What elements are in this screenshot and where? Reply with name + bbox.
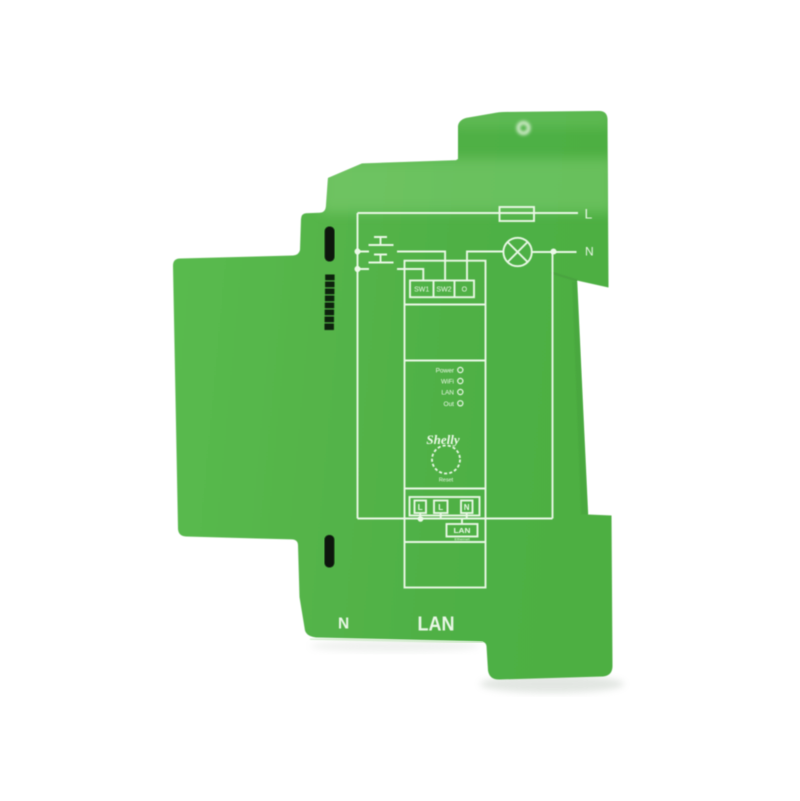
svg-text:O: O [462,287,468,294]
svg-text:N: N [585,245,594,259]
svg-text:Reset: Reset [439,478,454,484]
svg-text:LAN: LAN [454,528,471,535]
svg-text:N: N [464,503,470,512]
svg-text:WiFi: WiFi [441,379,454,386]
svg-text:L: L [585,206,593,222]
svg-text:Out: Out [444,401,455,408]
svg-text:L: L [418,503,423,512]
svg-text:L: L [438,503,443,512]
svg-text:SW2: SW2 [436,287,451,294]
svg-text:Shelly: Shelly [426,432,459,447]
svg-text:LAN: LAN [418,614,455,636]
svg-text:LAN: LAN [441,390,454,397]
svg-text:Power: Power [436,368,455,375]
svg-text:SW1: SW1 [414,287,429,294]
svg-text:Ethernet: Ethernet [454,537,470,542]
svg-text:N: N [338,616,349,633]
